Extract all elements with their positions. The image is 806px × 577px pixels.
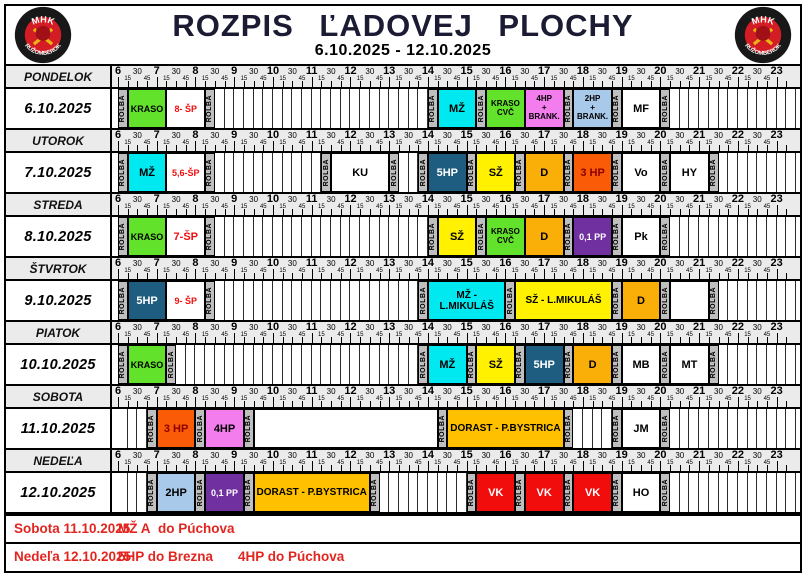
empty-slot-cell [438, 473, 448, 512]
rolba-block: ROLBA [564, 153, 574, 192]
empty-slot-cell [670, 473, 680, 512]
minute-label: 15 [473, 268, 480, 274]
minute-label: 15 [589, 204, 596, 210]
block-label: ROLBA [565, 479, 572, 506]
minute-label: 30 [520, 452, 529, 460]
time-tick [641, 273, 642, 279]
empty-slot-cell [225, 153, 235, 192]
time-tick [234, 141, 235, 151]
time-tick [273, 397, 274, 407]
minute-label: 45 [144, 204, 151, 210]
empty-slot-cell [312, 217, 322, 256]
rolba-block: ROLBA [564, 345, 574, 384]
time-tick [350, 269, 351, 279]
rolba-block: ROLBA [244, 473, 254, 512]
empty-slot-cell [273, 281, 283, 320]
page-title: ROZPIS ĽADOVEJ PLOCHY [72, 10, 734, 43]
minute-label: 30 [637, 452, 646, 460]
minute-label: 30 [327, 388, 336, 396]
schedule-track: ROLBA2HPROLBA0,1 PPROLBADORAST - P.BYSTR… [112, 473, 800, 512]
time-tick [195, 397, 196, 407]
empty-slot-cell [728, 89, 738, 128]
minute-label: 30 [637, 260, 646, 268]
event-block: MŽ [428, 345, 467, 384]
hour-label: 22 [732, 258, 744, 269]
time-tick [738, 141, 739, 151]
time-tick [254, 401, 255, 407]
block-label: 2HP [165, 487, 186, 499]
empty-slot-cell [767, 153, 777, 192]
time-tick [447, 273, 448, 279]
empty-slot-cell [254, 153, 264, 192]
minute-label: 30 [365, 260, 374, 268]
block-label: ROLBA [468, 351, 475, 378]
hour-label: 11 [306, 130, 318, 141]
time-tick [564, 401, 565, 407]
day-schedule-row: 11.10.2025ROLBA3 HPROLBA4HPROLBAROLBADOR… [6, 409, 800, 448]
hour-label: 20 [654, 258, 666, 269]
time-tick [273, 461, 274, 471]
hour-label: 6 [115, 322, 121, 333]
time-tick [467, 77, 468, 87]
time-tick [486, 81, 487, 87]
time-tick [505, 77, 506, 87]
hour-label: 16 [499, 450, 511, 461]
hour-label: 20 [654, 66, 666, 77]
block-label: 0,1 PP [579, 232, 606, 242]
minute-label: 45 [686, 204, 693, 210]
minute-label: 45 [647, 204, 654, 210]
time-tick [215, 209, 216, 215]
minute-label: 30 [249, 324, 258, 332]
rolba-block: ROLBA [505, 281, 515, 320]
block-label: ROLBA [478, 223, 485, 250]
empty-slot-cell [341, 89, 351, 128]
minute-label: 30 [404, 132, 413, 140]
minute-label: 30 [133, 196, 142, 204]
minute-label: 30 [482, 196, 491, 204]
block-label: KRASO CVČ [491, 100, 520, 118]
block-label: ROLBA [197, 479, 204, 506]
empty-slot-cell [757, 153, 767, 192]
time-ruler-scale: 6153045715304581530459153045101530451115… [118, 258, 796, 279]
minute-label: 15 [473, 396, 480, 402]
time-tick [602, 337, 603, 343]
time-tick [486, 273, 487, 279]
time-tick [137, 337, 138, 343]
time-tick [622, 77, 623, 87]
hour-label: 13 [383, 386, 395, 397]
page-header: MHK RUŽOMBEROK ROZPIS ĽADOVEJ PLOCHY 6.1… [6, 6, 800, 66]
block-label: Pk [634, 231, 647, 243]
event-block: Pk [622, 217, 661, 256]
time-tick [389, 333, 390, 343]
time-tick [409, 337, 410, 343]
rolba-block: ROLBA [118, 153, 128, 192]
minute-label: 45 [725, 140, 732, 146]
empty-slot-cell [321, 281, 331, 320]
empty-slot-cell [738, 89, 748, 128]
minute-label: 15 [357, 76, 364, 82]
rolba-block: ROLBA [147, 473, 157, 512]
minute-label: 30 [327, 68, 336, 76]
hour-label: 22 [732, 322, 744, 333]
minute-label: 30 [327, 324, 336, 332]
date-range: 6.10.2025 - 12.10.2025 [72, 42, 734, 60]
time-tick [680, 145, 681, 151]
hour-label: 21 [693, 386, 705, 397]
minute-label: 45 [764, 396, 771, 402]
hour-label: 9 [231, 386, 237, 397]
time-tick [544, 77, 545, 87]
time-tick [467, 461, 468, 471]
empty-slot-cell [225, 89, 235, 128]
minute-label: 45 [337, 396, 344, 402]
time-tick [486, 401, 487, 407]
time-tick [719, 81, 720, 87]
event-block: HY [670, 153, 709, 192]
event-block: 5,6-ŠP [166, 153, 205, 192]
empty-slot-cell [137, 473, 147, 512]
block-label: ROLBA [613, 415, 620, 442]
empty-slot-cell [777, 345, 787, 384]
hour-label: 17 [538, 258, 550, 269]
schedule-track-inner: ROLBAMŽ5,6-ŠPROLBAROLBAKUROLBAROLBA5HPRO… [118, 153, 796, 192]
hour-label: 11 [306, 258, 318, 269]
block-label: ROLBA [710, 351, 717, 378]
empty-slot-cell [244, 345, 254, 384]
hour-label: 15 [461, 194, 473, 205]
minute-label: 45 [415, 460, 422, 466]
time-tick [757, 81, 758, 87]
minute-label: 30 [675, 388, 684, 396]
minute-label: 45 [647, 268, 654, 274]
hour-label: 21 [693, 322, 705, 333]
hour-label: 22 [732, 194, 744, 205]
hour-label: 15 [461, 322, 473, 333]
hour-label: 6 [115, 130, 121, 141]
minute-label: 45 [337, 204, 344, 210]
time-tick [757, 465, 758, 471]
time-tick [738, 461, 739, 471]
time-tick [176, 209, 177, 215]
minute-label: 30 [249, 68, 258, 76]
time-tick [428, 141, 429, 151]
block-label: ROLBA [565, 95, 572, 122]
time-tick [409, 401, 410, 407]
empty-slot-cell [341, 281, 351, 320]
time-tick [331, 145, 332, 151]
time-tick [660, 333, 661, 343]
empty-slot-cell [757, 409, 767, 448]
empty-slot-cell [263, 345, 273, 384]
time-tick [505, 141, 506, 151]
time-tick [719, 465, 720, 471]
empty-slot-cell [757, 89, 767, 128]
empty-slot-cell [738, 281, 748, 320]
empty-slot-cell [428, 473, 438, 512]
minute-label: 15 [318, 332, 325, 338]
minute-label: 15 [434, 140, 441, 146]
time-scale-row: SOBOTA6153045715304581530459153045101530… [6, 386, 800, 409]
time-tick [234, 461, 235, 471]
time-tick [680, 81, 681, 87]
event-block: KRASO CVČ [486, 217, 525, 256]
time-tick [757, 401, 758, 407]
time-tick [525, 465, 526, 471]
block-label: ROLBA [613, 479, 620, 506]
minute-label: 30 [675, 452, 684, 460]
day-name-cell: UTOROK [6, 130, 112, 151]
minute-label: 15 [279, 268, 286, 274]
minute-label: 30 [249, 132, 258, 140]
rolba-block: ROLBA [389, 153, 399, 192]
minute-label: 15 [744, 396, 751, 402]
empty-slot-cell [418, 217, 428, 256]
hour-label: 6 [115, 386, 121, 397]
empty-slot-cell [331, 281, 341, 320]
minute-label: 45 [415, 268, 422, 274]
time-tick [602, 465, 603, 471]
block-label: ROLBA [206, 159, 213, 186]
minute-label: 15 [744, 140, 751, 146]
minute-label: 30 [327, 260, 336, 268]
block-label: SŽ - L.MIKULÁŠ [525, 295, 601, 306]
hour-label: 20 [654, 194, 666, 205]
empty-slot-cell [215, 281, 225, 320]
minute-label: 15 [667, 460, 674, 466]
empty-slot-cell [263, 89, 273, 128]
minute-label: 45 [376, 268, 383, 274]
empty-slot-cell [738, 153, 748, 192]
hour-label: 12 [344, 258, 356, 269]
event-block: 3 HP [573, 153, 612, 192]
hour-label: 23 [771, 258, 783, 269]
minute-label: 15 [279, 396, 286, 402]
empty-slot-cell [389, 345, 399, 384]
time-tick [467, 205, 468, 215]
block-label: 0,1 PP [211, 488, 238, 498]
empty-slot-cell [777, 281, 787, 320]
time-tick [157, 77, 158, 87]
time-tick [602, 401, 603, 407]
time-tick [777, 141, 778, 151]
day-schedule-row: 12.10.2025ROLBA2HPROLBA0,1 PPROLBADORAST… [6, 473, 800, 512]
minute-label: 30 [249, 196, 258, 204]
hour-label: 6 [115, 258, 121, 269]
minute-label: 30 [559, 196, 568, 204]
hour-label: 14 [422, 194, 434, 205]
minute-label: 30 [172, 132, 181, 140]
minute-label: 45 [725, 396, 732, 402]
empty-slot-cell [225, 281, 235, 320]
minute-label: 45 [725, 76, 732, 82]
day-schedule-row: 7.10.2025ROLBAMŽ5,6-ŠPROLBAROLBAKUROLBAR… [6, 153, 800, 192]
hour-label: 22 [732, 450, 744, 461]
empty-slot-cell [728, 473, 738, 512]
empty-slot-cell [273, 153, 283, 192]
minute-label: 30 [675, 324, 684, 332]
minute-label: 15 [628, 204, 635, 210]
block-label: ROLBA [420, 351, 427, 378]
time-tick [331, 209, 332, 215]
empty-slot-cell [670, 217, 680, 256]
rolba-block: ROLBA [321, 153, 331, 192]
minute-label: 45 [570, 396, 577, 402]
time-tick [273, 141, 274, 151]
block-label: ROLBA [119, 95, 126, 122]
block-label: ROLBA [662, 479, 669, 506]
block-label: ROLBA [613, 223, 620, 250]
event-block: 7-ŠP [166, 217, 205, 256]
block-label: ROLBA [371, 479, 378, 506]
time-tick [699, 141, 700, 151]
hour-label: 18 [577, 386, 589, 397]
time-tick [544, 461, 545, 471]
block-label: ROLBA [420, 159, 427, 186]
minute-label: 45 [647, 332, 654, 338]
minute-label: 15 [512, 140, 519, 146]
empty-slot-cell [215, 89, 225, 128]
minute-label: 15 [667, 332, 674, 338]
minute-label: 45 [376, 460, 383, 466]
empty-slot-cell [399, 345, 409, 384]
block-label: ROLBA [429, 95, 436, 122]
empty-slot-cell [283, 153, 293, 192]
empty-slot-cell [360, 345, 370, 384]
rolba-block: ROLBA [244, 409, 254, 448]
time-tick [370, 273, 371, 279]
hour-label: 16 [499, 194, 511, 205]
minute-label: 30 [520, 68, 529, 76]
empty-slot-cell [786, 473, 796, 512]
time-tick [447, 209, 448, 215]
time-tick [312, 141, 313, 151]
hour-label: 23 [771, 130, 783, 141]
rolba-block: ROLBA [118, 345, 128, 384]
schedule-track: ROLBAKRASO7-ŠPROLBAROLBASŽROLBAKRASO CVČ… [112, 217, 800, 256]
empty-slot-cell [418, 473, 428, 512]
event-block: KRASO [128, 345, 167, 384]
time-tick [525, 145, 526, 151]
hour-label: 19 [616, 386, 628, 397]
block-label: KRASO CVČ [491, 228, 520, 246]
rolba-block: ROLBA [515, 345, 525, 384]
rolba-block: ROLBA [195, 473, 205, 512]
minute-label: 45 [144, 396, 151, 402]
hour-label: 16 [499, 66, 511, 77]
empty-slot-cell [215, 153, 225, 192]
time-tick [176, 145, 177, 151]
empty-slot-cell [312, 345, 322, 384]
hour-label: 23 [771, 386, 783, 397]
time-scale-row: STREDA6153045715304581530459153045101530… [6, 194, 800, 217]
empty-slot-cell [583, 409, 593, 448]
minute-label: 15 [202, 396, 209, 402]
day-section: PIATOK6153045715304581530459153045101530… [6, 322, 800, 386]
empty-slot-cell [399, 217, 409, 256]
time-tick [137, 273, 138, 279]
minute-label: 45 [415, 76, 422, 82]
rolba-block: ROLBA [660, 473, 670, 512]
time-tick [467, 141, 468, 151]
minute-label: 15 [744, 204, 751, 210]
minute-label: 15 [396, 268, 403, 274]
event-block: DORAST - P.BYSTRICA [254, 473, 370, 512]
minute-label: 15 [667, 268, 674, 274]
day-schedule-row: 6.10.2025ROLBAKRASO8- ŠPROLBAROLBAMŽROLB… [6, 89, 800, 128]
time-tick [641, 209, 642, 215]
minute-label: 30 [288, 196, 297, 204]
time-tick [505, 269, 506, 279]
block-label: SŽ [450, 231, 464, 243]
empty-slot-cell [748, 345, 758, 384]
hour-label: 14 [422, 322, 434, 333]
rolba-block: ROLBA [428, 217, 438, 256]
hour-label: 11 [306, 66, 318, 77]
event-block: 0,1 PP [205, 473, 244, 512]
schedule-track: ROLBA5HP9- ŠPROLBAROLBAMŽ - L.MIKULÁŠROL… [112, 281, 800, 320]
time-tick [660, 397, 661, 407]
empty-slot-cell [302, 281, 312, 320]
hour-label: 23 [771, 66, 783, 77]
minute-label: 45 [454, 140, 461, 146]
time-tick [409, 145, 410, 151]
time-ruler: 6153045715304581530459153045101530451115… [112, 130, 800, 151]
rolba-block: ROLBA [195, 409, 205, 448]
empty-slot-cell [709, 409, 719, 448]
time-tick [428, 333, 429, 343]
empty-slot-cell [292, 345, 302, 384]
empty-slot-cell [321, 89, 331, 128]
block-label: ROLBA [119, 223, 126, 250]
minute-label: 15 [551, 204, 558, 210]
empty-slot-cell [689, 409, 699, 448]
empty-slot-cell [263, 217, 273, 256]
block-label: SŽ [489, 359, 503, 371]
minute-label: 30 [598, 452, 607, 460]
minute-label: 15 [705, 204, 712, 210]
minute-label: 30 [404, 324, 413, 332]
time-tick [447, 401, 448, 407]
hour-label: 9 [231, 258, 237, 269]
minute-label: 15 [318, 460, 325, 466]
empty-slot-cell [254, 281, 264, 320]
time-tick [738, 205, 739, 215]
minute-label: 45 [492, 332, 499, 338]
event-block: DORAST - P.BYSTRICA [447, 409, 563, 448]
minute-label: 45 [609, 268, 616, 274]
minute-label: 15 [628, 332, 635, 338]
time-ruler: 6153045715304581530459153045101530451115… [112, 322, 800, 343]
day-schedule-row: 9.10.2025ROLBA5HP9- ŠPROLBAROLBAMŽ - L.M… [6, 281, 800, 320]
empty-slot-cell [389, 217, 399, 256]
minute-label: 15 [163, 332, 170, 338]
block-label: ROLBA [197, 415, 204, 442]
hour-label: 11 [306, 322, 318, 333]
block-label: ROLBA [662, 287, 669, 314]
event-block: 5HP [525, 345, 564, 384]
minute-label: 30 [637, 196, 646, 204]
empty-slot-cell [331, 217, 341, 256]
minute-label: 30 [675, 260, 684, 268]
minute-label: 30 [365, 132, 374, 140]
day-name-cell: NEDEĽA [6, 450, 112, 471]
minute-label: 15 [396, 140, 403, 146]
hour-label: 22 [732, 130, 744, 141]
minute-label: 15 [744, 332, 751, 338]
day-name-cell: PONDELOK [6, 66, 112, 87]
